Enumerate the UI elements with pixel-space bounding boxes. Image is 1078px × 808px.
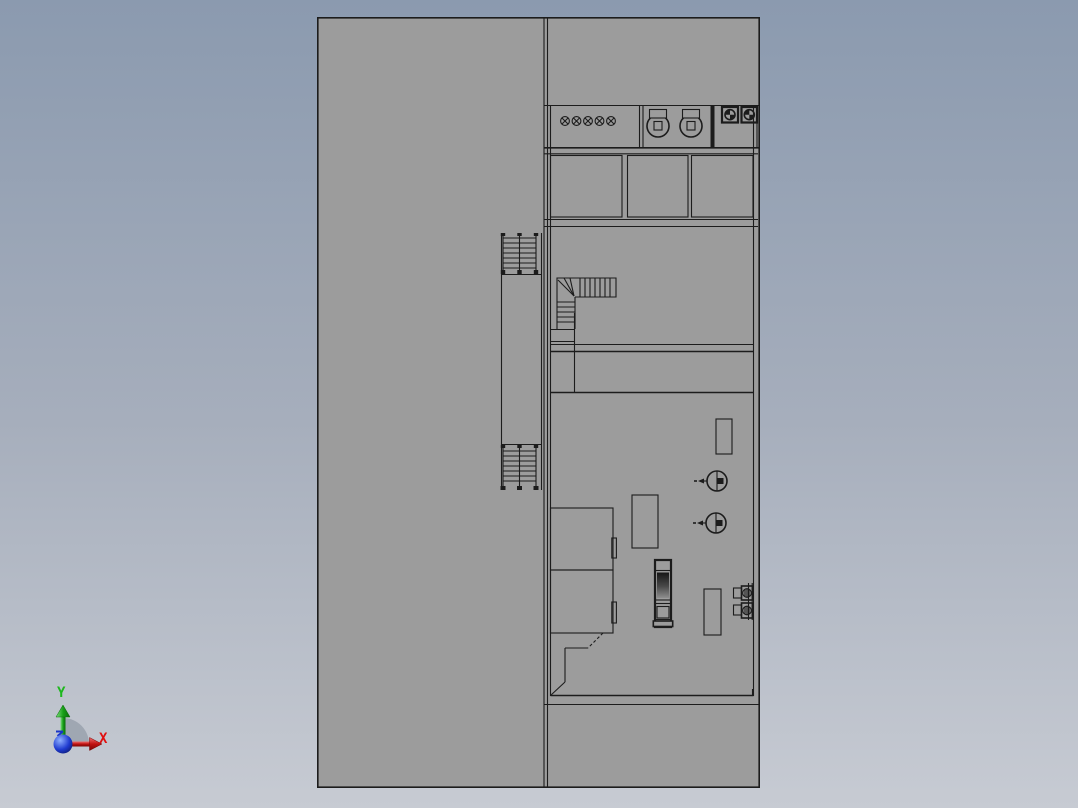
model-body-face[interactable] [318,18,759,787]
origin-sphere[interactable] [54,735,73,754]
x-axis-label: X [99,732,107,746]
cad-viewport[interactable]: { "triad": { "x_label": "X", "y_label": … [0,0,1078,808]
origin-triad[interactable] [30,695,130,770]
y-axis-label: Y [57,686,65,700]
model-drawing[interactable] [317,17,760,788]
